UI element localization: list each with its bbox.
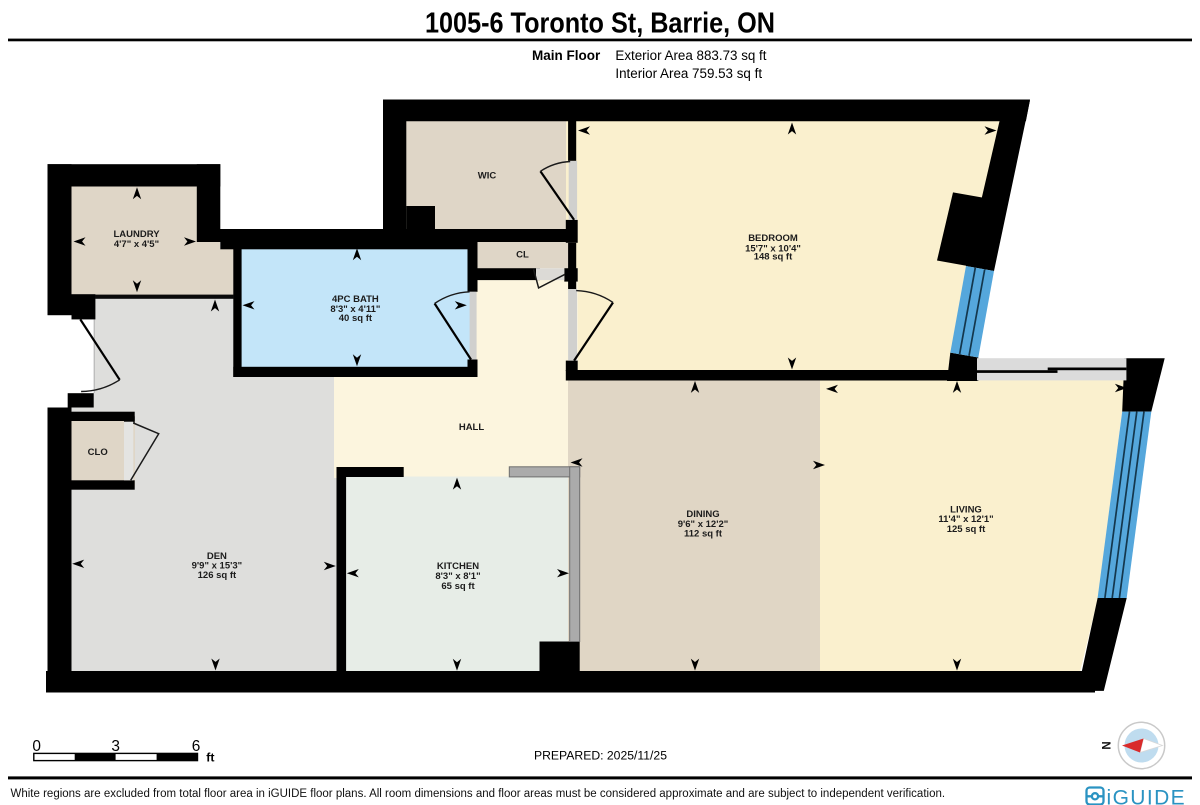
svg-text:40 sq ft: 40 sq ft xyxy=(339,313,373,324)
svg-text:ft: ft xyxy=(206,751,214,765)
svg-text:HALL: HALL xyxy=(459,422,485,433)
svg-text:CLO: CLO xyxy=(88,447,108,458)
svg-text:125 sq ft: 125 sq ft xyxy=(947,524,986,535)
svg-text:PREPARED: 2025/11/25: PREPARED: 2025/11/25 xyxy=(534,748,667,762)
svg-text:4'7" x 4'5": 4'7" x 4'5" xyxy=(114,239,159,250)
svg-text:Main Floor: Main Floor xyxy=(532,48,601,63)
svg-text:iGUIDE: iGUIDE xyxy=(1107,787,1187,805)
svg-text:0: 0 xyxy=(32,738,41,755)
svg-text:Exterior Area 883.73 sq ft: Exterior Area 883.73 sq ft xyxy=(615,48,766,63)
svg-text:3: 3 xyxy=(111,738,120,755)
svg-text:112 sq ft: 112 sq ft xyxy=(684,528,723,539)
svg-text:1005-6 Toronto St, Barrie, ON: 1005-6 Toronto St, Barrie, ON xyxy=(425,8,775,40)
svg-text:CL: CL xyxy=(516,249,529,260)
svg-text:65 sq ft: 65 sq ft xyxy=(441,581,475,592)
svg-text:WIC: WIC xyxy=(478,171,497,182)
svg-text:Interior Area 759.53 sq ft: Interior Area 759.53 sq ft xyxy=(615,66,762,81)
svg-text:6: 6 xyxy=(192,738,201,755)
svg-text:148 sq ft: 148 sq ft xyxy=(754,251,793,262)
svg-text:126 sq ft: 126 sq ft xyxy=(198,570,237,581)
svg-text:White regions are excluded fro: White regions are excluded from total fl… xyxy=(11,788,946,800)
svg-text:BEDROOM: BEDROOM xyxy=(748,233,798,244)
svg-text:N: N xyxy=(1102,741,1114,749)
